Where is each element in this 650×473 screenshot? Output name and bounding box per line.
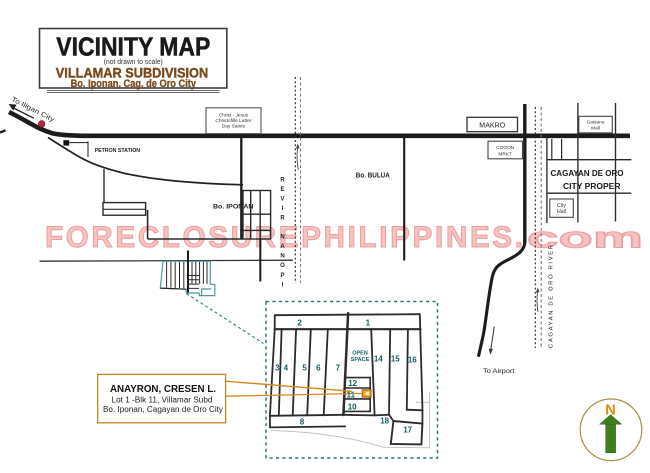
svg-text:MRKT: MRKT [498,152,512,158]
svg-text:N: N [280,254,284,260]
svg-text:I: I [282,206,284,212]
svg-text:SPACE: SPACE [351,357,370,363]
svg-text:P: P [280,273,284,279]
svg-text:17: 17 [403,426,412,435]
svg-text:11: 11 [347,391,356,400]
svg-text:To Airport: To Airport [483,368,515,375]
svg-text:CAGAYAN DE ORO RIVER: CAGAYAN DE ORO RIVER [549,245,555,348]
svg-text:Bo. BULUA: Bo. BULUA [356,170,390,179]
svg-text:15: 15 [391,355,400,364]
svg-text:R: R [280,177,285,183]
svg-text:City: City [557,203,566,209]
svg-text:Lot 1 -Blk 11, Villamar Subd: Lot 1 -Blk 11, Villamar Subd [112,396,213,405]
svg-text:Mall: Mall [591,126,600,132]
svg-text:16: 16 [408,356,417,365]
svg-text:O: O [280,263,285,269]
svg-text:VICINITY MAP: VICINITY MAP [56,32,210,62]
svg-text:ANAYRON, CRESEN L.: ANAYRON, CRESEN L. [110,383,216,395]
svg-text:Christofille Latter: Christofille Latter [215,118,251,124]
svg-text:Day Saints: Day Saints [222,124,246,130]
svg-text:CITY PROPER: CITY PROPER [563,182,621,191]
svg-text:N: N [280,235,284,241]
svg-text:Hall: Hall [557,209,566,215]
svg-text:A: A [280,244,285,250]
svg-text:Christ - Jesus: Christ - Jesus [219,112,249,118]
svg-text:Bo. IPONAN: Bo. IPONAN [213,204,254,211]
svg-text:4: 4 [284,364,289,373]
svg-text:5: 5 [302,363,307,372]
svg-text:2: 2 [297,319,302,328]
svg-text:8: 8 [300,418,305,427]
svg-text:CAGAYAN DE ORO: CAGAYAN DE ORO [551,169,624,178]
svg-text:7: 7 [336,363,341,372]
svg-text:I: I [282,282,284,288]
svg-text:COGON: COGON [496,145,515,151]
svg-text:E: E [280,187,284,193]
svg-text:10: 10 [348,403,357,412]
svg-text:OPEN: OPEN [352,351,368,357]
svg-text:MAKRO: MAKRO [479,121,505,130]
svg-text:14: 14 [374,355,383,364]
svg-text:com: com [527,222,643,255]
svg-text:Gaisano: Gaisano [587,120,605,126]
svg-text:PETRON STATION: PETRON STATION [95,148,141,154]
svg-text:18: 18 [380,417,389,426]
svg-text:1: 1 [366,319,371,328]
svg-text:Bo. Iponan, Cag. de Oro City: Bo. Iponan, Cag. de Oro City [71,78,197,90]
svg-text:R: R [280,216,285,222]
svg-text:V: V [280,196,284,202]
svg-text:3: 3 [275,363,280,372]
svg-text:Bo. Iponan, Cagayan de Oro Cit: Bo. Iponan, Cagayan de Oro City [103,405,223,414]
svg-text:6: 6 [316,363,321,372]
svg-text:12: 12 [348,379,357,388]
